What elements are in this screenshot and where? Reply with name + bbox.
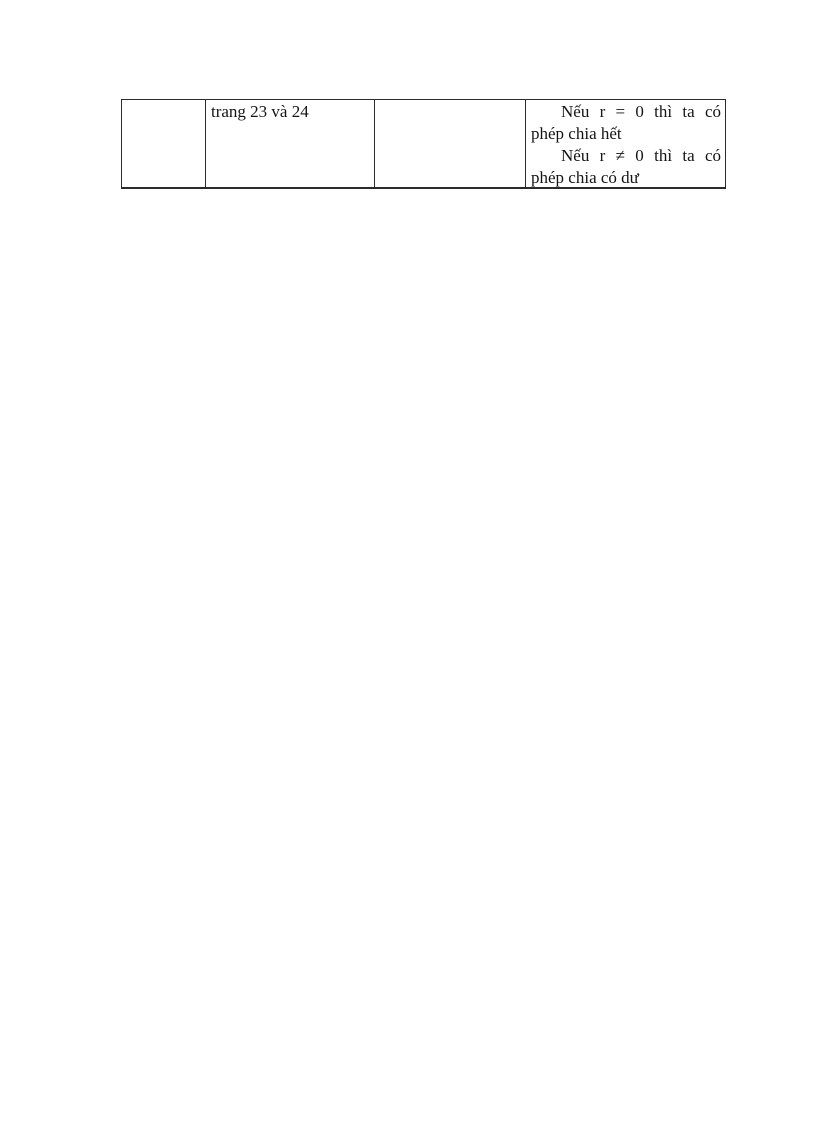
table-cell-notes: Nếu r = 0 thì ta có phép chia hết Nếu r … [526,100,725,187]
document-page: trang 23 và 24 Nếu r = 0 thì ta có phép … [0,0,816,1123]
table-cell-empty-1 [122,100,206,187]
pages-text: trang 23 và 24 [211,101,370,123]
note-paragraph-1: Nếu r = 0 thì ta có phép chia hết [531,101,721,145]
note-paragraph-2: Nếu r ≠ 0 thì ta có phép chia có dư [531,145,721,187]
table-cell-pages: trang 23 và 24 [206,100,375,187]
table-cell-empty-2 [375,100,526,187]
continued-table: trang 23 và 24 Nếu r = 0 thì ta có phép … [121,99,726,189]
